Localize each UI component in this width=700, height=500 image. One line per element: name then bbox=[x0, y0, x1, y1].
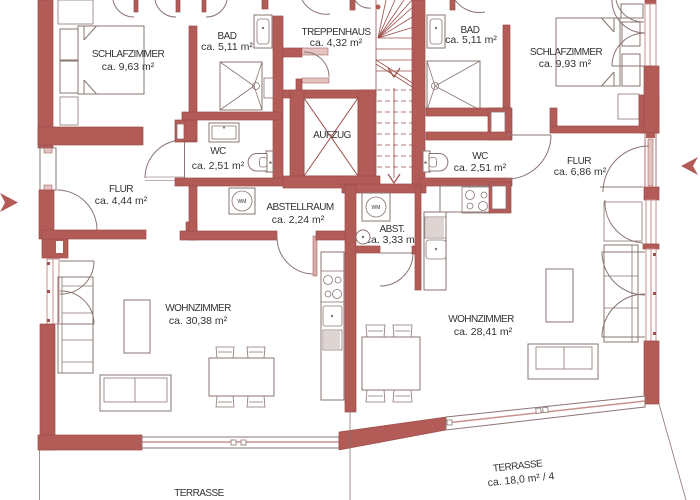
svg-text:ca. 6,86 m²: ca. 6,86 m² bbox=[554, 166, 607, 178]
svg-text:ca. 30,38 m²: ca. 30,38 m² bbox=[169, 315, 228, 327]
svg-text:WOHNZIMMER: WOHNZIMMER bbox=[165, 303, 231, 314]
svg-text:ca. 5,11 m²: ca. 5,11 m² bbox=[445, 34, 497, 46]
svg-text:ca. 2,51 m²: ca. 2,51 m² bbox=[454, 162, 507, 174]
svg-text:ca. 9,93 m²: ca. 9,93 m² bbox=[539, 58, 592, 70]
svg-text:SCHLAFZIMMER: SCHLAFZIMMER bbox=[92, 49, 165, 60]
svg-text:SCHLAFZIMMER: SCHLAFZIMMER bbox=[530, 47, 603, 58]
svg-text:WC: WC bbox=[472, 151, 488, 162]
svg-text:FLUR: FLUR bbox=[109, 184, 133, 195]
svg-text:ABSTELLRAUM: ABSTELLRAUM bbox=[266, 202, 334, 213]
svg-text:TERRASSE: TERRASSE bbox=[174, 488, 224, 499]
svg-text:ca. 4,32 m²: ca. 4,32 m² bbox=[310, 37, 363, 49]
svg-text:WM: WM bbox=[238, 199, 247, 205]
svg-text:AUFZUG: AUFZUG bbox=[313, 130, 352, 141]
svg-text:WC: WC bbox=[210, 146, 226, 157]
svg-text:ca. 3,33 m²: ca. 3,33 m² bbox=[366, 234, 419, 246]
svg-text:WOHNZIMMER: WOHNZIMMER bbox=[448, 314, 514, 325]
svg-text:ca. 28,41 m²: ca. 28,41 m² bbox=[454, 326, 513, 338]
svg-text:ca. 2,51 m²: ca. 2,51 m² bbox=[192, 160, 245, 172]
svg-text:ca. 5,11 m²: ca. 5,11 m² bbox=[201, 41, 253, 53]
svg-text:WM: WM bbox=[372, 205, 381, 211]
svg-text:ca. 2,24 m²: ca. 2,24 m² bbox=[272, 214, 325, 226]
svg-text:ca. 9,63 m²: ca. 9,63 m² bbox=[102, 61, 155, 73]
svg-text:ca. 4,44 m²: ca. 4,44 m² bbox=[95, 195, 148, 207]
